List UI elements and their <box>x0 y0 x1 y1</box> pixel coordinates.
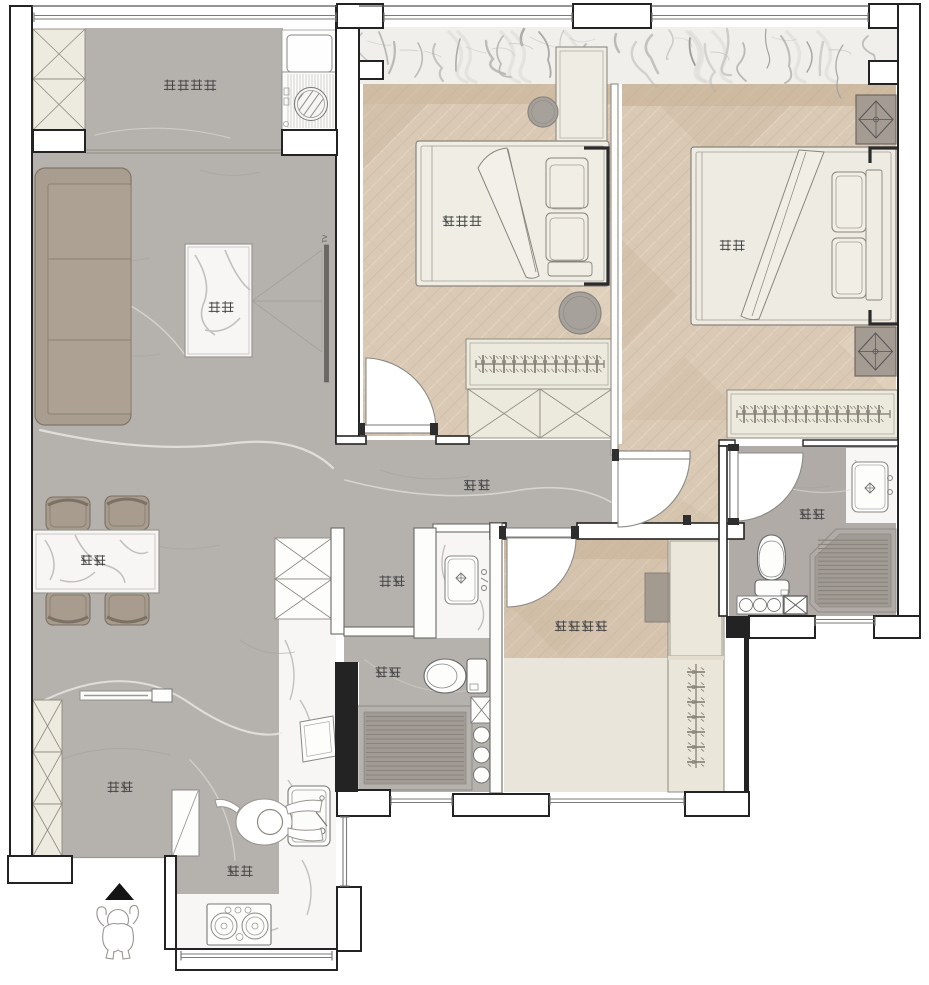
svg-text:TV: TV <box>322 234 329 243</box>
